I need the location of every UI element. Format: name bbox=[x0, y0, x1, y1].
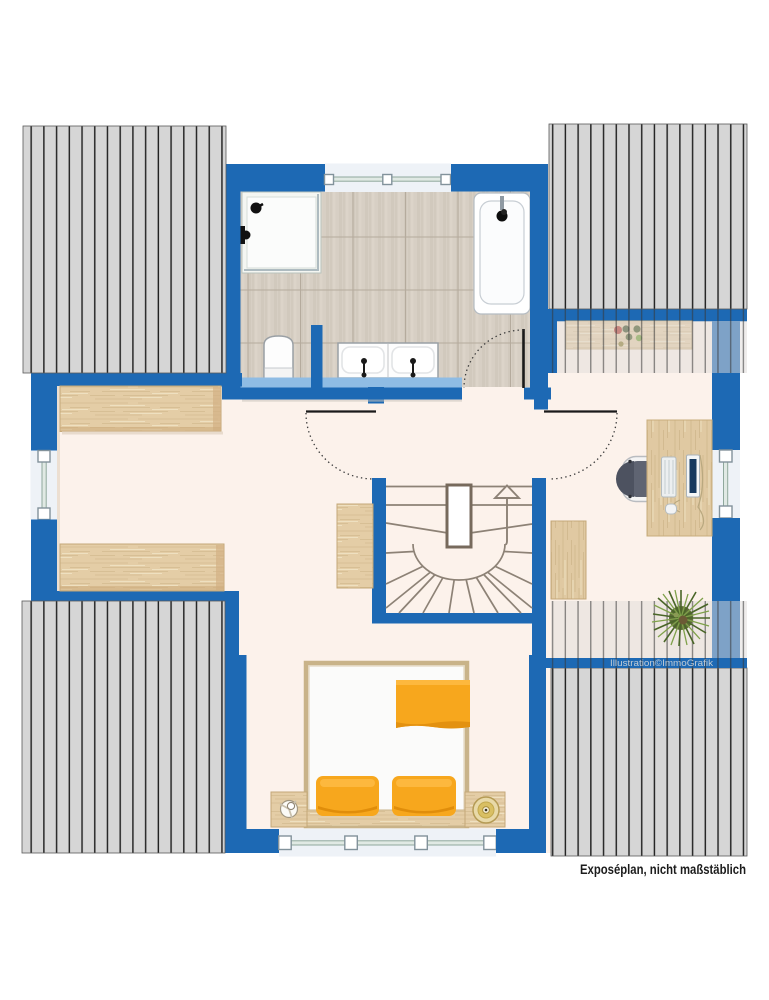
svg-text:Exposéplan, nicht maßstäblich: Exposéplan, nicht maßstäblich bbox=[580, 861, 746, 877]
svg-text:Illustration©ImmoGrafik: Illustration©ImmoGrafik bbox=[610, 658, 713, 669]
